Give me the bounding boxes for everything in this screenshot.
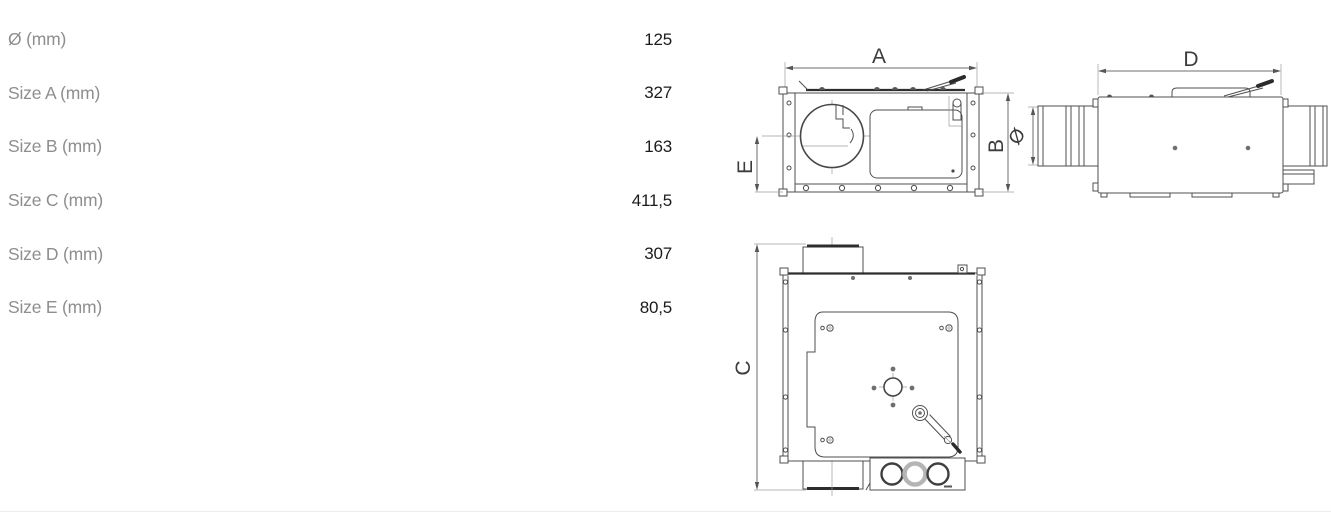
front-view: A [734,45,1014,196]
row-label: Size D (mm) [8,244,103,265]
table-row-size-c: Size C (mm) 411,5 [0,174,672,228]
table-row-diameter: Ø (mm) 125 [0,13,672,67]
dimension-b: B [981,93,1014,192]
cable-gland [928,464,949,485]
side-view-unit [1038,81,1327,197]
table-row-size-b: Size B (mm) 163 [0,120,672,174]
dimension-label-b: B [985,139,1008,153]
dimension-label-e: E [734,160,757,174]
dimension-label-diameter: Ø [1005,125,1031,149]
dimension-e: E [734,136,783,192]
dimension-label-a: A [872,45,886,68]
dimension-label-c: C [732,360,755,375]
dimension-label-d: D [1183,48,1198,71]
product-dimensions-page: Ø (mm) 125 Size A (mm) 327 Size B (mm) 1… [0,0,1331,512]
connector-box [866,458,965,490]
technical-drawings: A [700,0,1331,512]
cable-gland [905,464,926,485]
row-value: 125 [644,30,672,50]
dimension-drawing-svg: A [700,0,1331,512]
side-view: D Ø [1005,48,1327,197]
table-row-size-e: Size E (mm) 80,5 [0,281,672,335]
row-value: 163 [644,137,672,157]
row-label: Size B (mm) [8,136,102,157]
top-view: C [732,237,985,496]
row-value: 411,5 [632,191,672,211]
row-value: 307 [644,244,672,264]
cable-gland [882,464,903,485]
row-label: Size A (mm) [8,83,100,104]
top-view-unit [780,237,985,496]
dimension-table: Ø (mm) 125 Size A (mm) 327 Size B (mm) 1… [0,13,672,335]
front-view-unit [762,77,983,196]
corner-clip-icon [958,265,967,273]
table-row-size-a: Size A (mm) 327 [0,67,672,121]
row-value: 80,5 [640,298,672,318]
row-label: Size C (mm) [8,190,103,211]
row-value: 327 [644,83,672,103]
row-label: Ø (mm) [8,29,66,50]
row-label: Size E (mm) [8,297,102,318]
dimension-a: A [785,45,977,88]
motor-plate [807,312,958,457]
table-row-size-d: Size D (mm) 307 [0,227,672,281]
access-panel [870,107,962,178]
